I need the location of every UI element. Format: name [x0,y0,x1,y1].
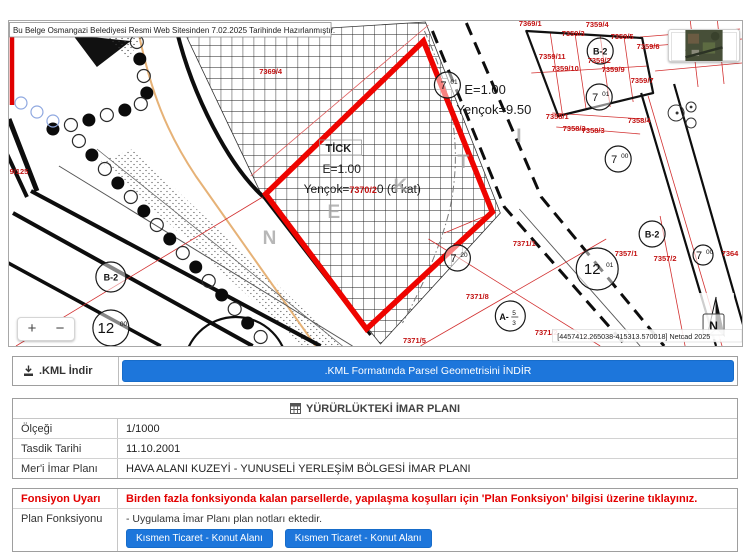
zone-code-label: TİCK [326,142,352,155]
zoom-control[interactable]: + − [17,317,75,341]
scale-value: 1/1000 [118,419,737,438]
kml-label-text: .KML İndir [39,365,93,377]
svg-text:K: K [393,176,407,197]
kml-bar: .KML İndir .KML Formatında Parsel Geomet… [12,356,738,386]
svg-text:00: 00 [120,321,128,328]
svg-text:00: 00 [621,153,629,160]
svg-text:01: 01 [606,262,614,269]
svg-text:T: T [457,152,469,173]
kml-button-cell: .KML Formatında Parsel Geometrisini İNDİ… [119,357,737,385]
road-height-label: Yençok=9.50 [456,102,531,117]
kml-download-label: .KML İndir [13,357,119,385]
svg-text:7371/5: 7371/5 [403,336,426,345]
plan-function-value: - Uygulama İmar Planı plan notları ekted… [118,509,737,551]
svg-text:7359/3: 7359/3 [562,29,585,38]
plan-notes-text: - Uygulama İmar Planı plan notları ekted… [126,513,731,525]
svg-text:01: 01 [450,79,458,86]
svg-text:7369/1: 7369/1 [519,21,542,28]
map-viewport[interactable]: TİCK E=1.00 Yençok=7370/20 (6 kat) E=1.0… [8,20,743,347]
svg-text:7364: 7364 [722,249,739,258]
function-warning-label: Fonsiyon Uyarı [13,489,118,508]
svg-text:7371/8: 7371/8 [466,292,489,301]
function-warning-text: Birden fazla fonksiyonda kalan parseller… [118,489,737,508]
svg-text:00: 00 [706,249,714,256]
download-icon [23,365,34,377]
table-row: Plan Fonksiyonu - Uygulama İmar Planı pl… [13,509,737,551]
svg-text:7358/1: 7358/1 [546,112,569,121]
page: TİCK E=1.00 Yençok=7370/20 (6 kat) E=1.0… [0,0,750,552]
scale-label: Ölçeği [13,419,118,438]
far-label: E=1.00 [323,162,362,176]
kml-download-button[interactable]: .KML Formatında Parsel Geometrisini İNDİ… [122,360,734,382]
svg-text:I: I [516,126,521,147]
svg-text:7359/9: 7359/9 [602,65,625,74]
svg-text:Bu Belge Osmangazi Belediyesi: Bu Belge Osmangazi Belediyesi Resmi Web … [13,26,335,35]
svg-text:7: 7 [696,250,702,262]
table-row: Fonsiyon Uyarı Birden fazla fonksiyonda … [13,489,737,509]
basemap-switcher[interactable] [668,29,740,62]
table-row: Mer'i İmar Planı HAVA ALANI KUZEYİ - YUN… [13,459,737,478]
svg-text:7359/2: 7359/2 [588,56,611,65]
svg-text:7359/4: 7359/4 [586,21,610,29]
coordinates-readout: [4457412.265038-415313.570018] Netcad 20… [552,330,742,343]
svg-text:7359/6: 7359/6 [637,42,660,51]
svg-text:7359/7: 7359/7 [631,76,654,85]
svg-text:7359/11: 7359/11 [539,52,566,61]
plan-table: YÜRÜRLÜKTEKİ İMAR PLANI Ölçeği 1/1000 Ta… [12,398,738,479]
svg-text:12: 12 [584,261,601,278]
plan-name-label: Mer'i İmar Planı [13,459,118,478]
road-far-label: E=1.00 [464,82,505,97]
svg-text:3: 3 [512,320,516,327]
map-canvas: TİCK E=1.00 Yençok=7370/20 (6 kat) E=1.0… [9,21,742,346]
approval-date-value: 11.10.2001 [118,439,737,458]
satellite-basemap-thumbnail[interactable] [705,32,737,61]
svg-text:B-2: B-2 [645,229,659,239]
plan-function-button-2[interactable]: Kısmen Ticaret - Konut Alanı [285,529,432,548]
svg-text:7: 7 [592,92,598,104]
svg-text:7359/10: 7359/10 [552,64,579,73]
svg-text:7357/1: 7357/1 [615,249,638,258]
table-row: Tasdik Tarihi 11.10.2001 [13,439,737,459]
approval-date-label: Tasdik Tarihi [13,439,118,458]
svg-text:7358/4: 7358/4 [628,116,652,125]
zoom-in-button[interactable]: + [22,319,43,339]
svg-text:A-: A- [499,312,508,322]
map-disclaimer: Bu Belge Osmangazi Belediyesi Resmi Web … [9,23,335,38]
svg-text:7: 7 [450,253,456,265]
svg-text:B-2: B-2 [104,272,118,282]
plan-name-value: HAVA ALANI KUZEYİ - YUNUSELİ YERLEŞİM BÖ… [118,459,737,478]
svg-text:N: N [263,228,277,249]
plan-table-header: YÜRÜRLÜKTEKİ İMAR PLANI [13,399,737,419]
svg-text:7: 7 [440,80,446,92]
svg-text:7359/5: 7359/5 [611,32,634,41]
svg-text:7358/3: 7358/3 [582,126,605,135]
svg-text:5: 5 [512,310,516,317]
svg-text:7: 7 [611,154,617,166]
svg-text:7369/4: 7369/4 [259,67,283,76]
svg-text:12: 12 [98,320,115,337]
svg-text:7371/1: 7371/1 [513,239,536,248]
zoom-out-button[interactable]: − [50,319,71,339]
plan-table-title: YÜRÜRLÜKTEKİ İMAR PLANI [306,403,460,415]
svg-text:[4457412.265038-415313.570018]: [4457412.265038-415313.570018] Netcad 20… [557,332,710,341]
table-icon [290,403,301,414]
svg-text:20: 20 [460,252,468,259]
plan-function-button-1[interactable]: Kısmen Ticaret - Konut Alanı [126,529,273,548]
svg-text:01: 01 [602,91,610,98]
plan-function-label: Plan Fonksiyonu [13,509,118,551]
svg-text:E: E [328,202,341,223]
svg-text:9/125: 9/125 [10,167,29,176]
svg-text:7357/2: 7357/2 [654,254,677,263]
function-table: Fonsiyon Uyarı Birden fazla fonksiyonda … [12,488,738,552]
table-row: Ölçeği 1/1000 [13,419,737,439]
